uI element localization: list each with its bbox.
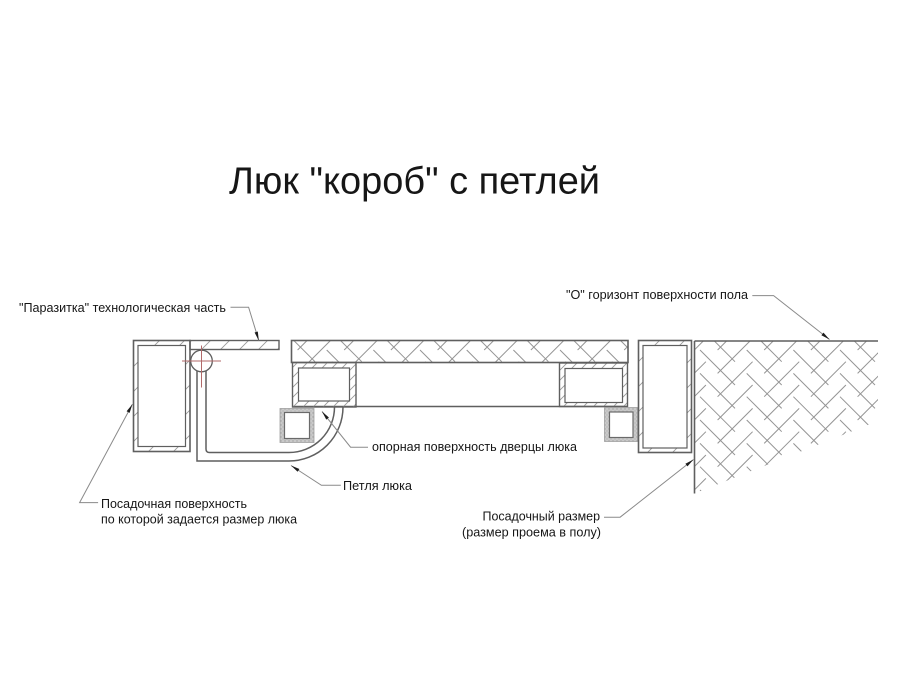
svg-text:"О" горизонт поверхности пола: "О" горизонт поверхности пола xyxy=(566,288,749,302)
svg-text:Посадочная поверхность: Посадочная поверхность xyxy=(101,497,247,511)
svg-text:Петля люка: Петля люка xyxy=(343,479,413,493)
svg-text:Посадочный размер: Посадочный размер xyxy=(483,510,601,524)
svg-text:опорная поверхность дверцы люк: опорная поверхность дверцы люка xyxy=(372,440,578,454)
svg-text:Люк "короб" с петлей: Люк "короб" с петлей xyxy=(229,161,600,203)
svg-text:(размер проема в полу): (размер проема в полу) xyxy=(462,526,601,540)
svg-text:"Паразитка" технологическая ча: "Паразитка" технологическая часть xyxy=(19,301,226,315)
svg-text:по которой задается размер люк: по которой задается размер люка xyxy=(101,513,298,527)
